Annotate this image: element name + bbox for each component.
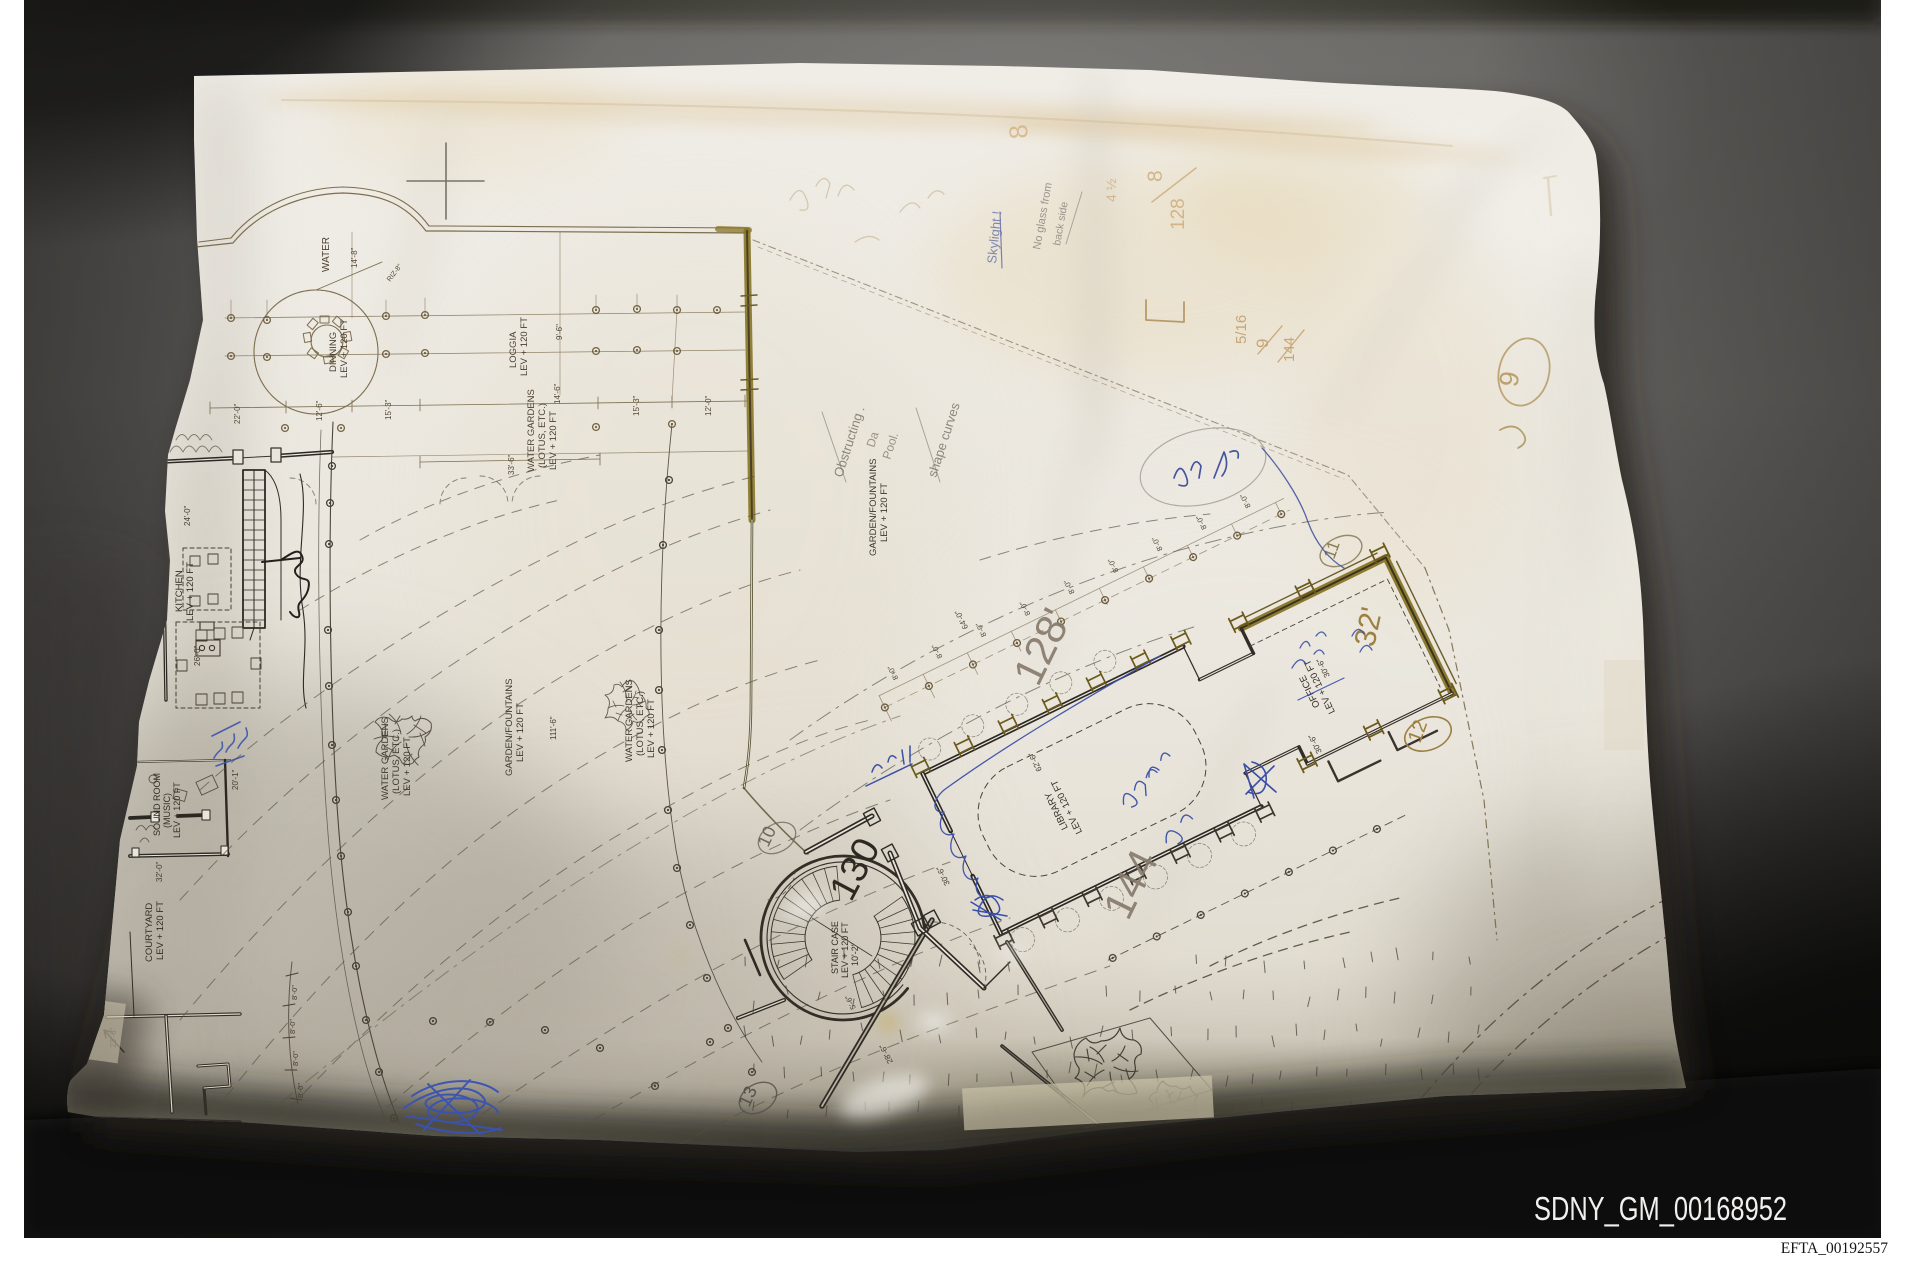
svg-text:SOUND ROOM: SOUND ROOM	[152, 773, 162, 836]
svg-text:111'-6": 111'-6"	[549, 716, 558, 740]
svg-text:LEV + 120 FT: LEV + 120 FT	[646, 699, 657, 758]
svg-text:(LOTUS, ETC.): (LOTUS, ETC.)	[635, 691, 646, 756]
svg-text:24'-0": 24'-0"	[183, 505, 192, 526]
svg-text:GARDEN/FOUNTAINS: GARDEN/FOUNTAINS	[868, 459, 879, 556]
svg-text:4 ½: 4 ½	[1103, 178, 1119, 202]
svg-text:8: 8	[1144, 170, 1167, 182]
svg-text:LEV + 120 FT: LEV + 120 FT	[185, 562, 196, 621]
svg-text:22'-0": 22'-0"	[233, 403, 242, 424]
svg-text:15'-3": 15'-3"	[384, 399, 393, 420]
svg-text:5/16: 5/16	[1233, 315, 1250, 344]
svg-text:LEV + 120 FT: LEV + 120 FT	[548, 411, 559, 470]
svg-text:WATER GARDENS: WATER GARDENS	[526, 389, 537, 472]
svg-text:9: 9	[1253, 339, 1272, 348]
svg-text:(LOTUS, ETC.): (LOTUS, ETC.)	[537, 403, 548, 468]
svg-text:WATER: WATER	[321, 237, 332, 272]
svg-text:KITCHEN: KITCHEN	[174, 570, 185, 612]
svg-text:14'-6": 14'-6"	[553, 383, 562, 404]
svg-text:LEV + 120 FT: LEV + 120 FT	[519, 317, 530, 376]
svg-text:33'-6": 33'-6"	[507, 454, 516, 475]
svg-text:STAIR CASE: STAIR CASE	[830, 921, 840, 974]
svg-text:8'-0": 8'-0"	[296, 1083, 305, 1098]
svg-text:20'-1": 20'-1"	[231, 769, 240, 790]
svg-text:128: 128	[1168, 198, 1189, 230]
svg-text:(LOTUS, ETC.): (LOTUS, ETC.)	[391, 729, 402, 794]
svg-text:LEV + 120 FT: LEV + 120 FT	[155, 901, 166, 960]
svg-text:LEV + 120 FT: LEV + 120 FT	[339, 319, 350, 378]
svg-text:LOGGIA: LOGGIA	[508, 331, 519, 368]
svg-text:8'-0": 8'-0"	[288, 1019, 297, 1034]
svg-text:26'-0": 26'-0"	[193, 645, 202, 666]
svg-text:15'-3": 15'-3"	[632, 395, 641, 416]
svg-text:SDNY_GM_00168952: SDNY_GM_00168952	[1534, 1190, 1787, 1227]
svg-text:COURTYARD: COURTYARD	[144, 903, 155, 962]
svg-text:12'-0": 12'-0"	[704, 395, 713, 416]
svg-text:EFTA_00192557: EFTA_00192557	[1781, 1240, 1889, 1257]
svg-text:GARDEN/FOUNTAINS: GARDEN/FOUNTAINS	[504, 679, 515, 776]
svg-text:14'-8": 14'-8"	[350, 247, 359, 268]
svg-text:(MUSIC): (MUSIC)	[162, 793, 172, 828]
svg-text:8'-0": 8'-0"	[290, 985, 299, 1000]
svg-text:LEV + 120 FT: LEV + 120 FT	[402, 737, 413, 796]
svg-text:12'-6": 12'-6"	[315, 400, 324, 421]
svg-text:32'-0": 32'-0"	[155, 861, 164, 882]
svg-text:9'-6": 9'-6"	[555, 324, 564, 340]
svg-text:8'-0": 8'-0"	[291, 1051, 300, 1066]
svg-text:WATER GARDENS: WATER GARDENS	[380, 717, 391, 800]
svg-text:WATER GARDENS: WATER GARDENS	[624, 679, 635, 762]
svg-text:10'-2": 10'-2"	[850, 943, 860, 966]
svg-text:LEV + 120 FT: LEV + 120 FT	[879, 483, 890, 542]
svg-text:DINNING: DINNING	[328, 332, 339, 372]
svg-text:LEV + 120 FT: LEV + 120 FT	[515, 703, 526, 762]
svg-text:LEV + 120 FT: LEV + 120 FT	[840, 922, 850, 978]
svg-text:LEV + 120 FT: LEV + 120 FT	[172, 782, 182, 838]
